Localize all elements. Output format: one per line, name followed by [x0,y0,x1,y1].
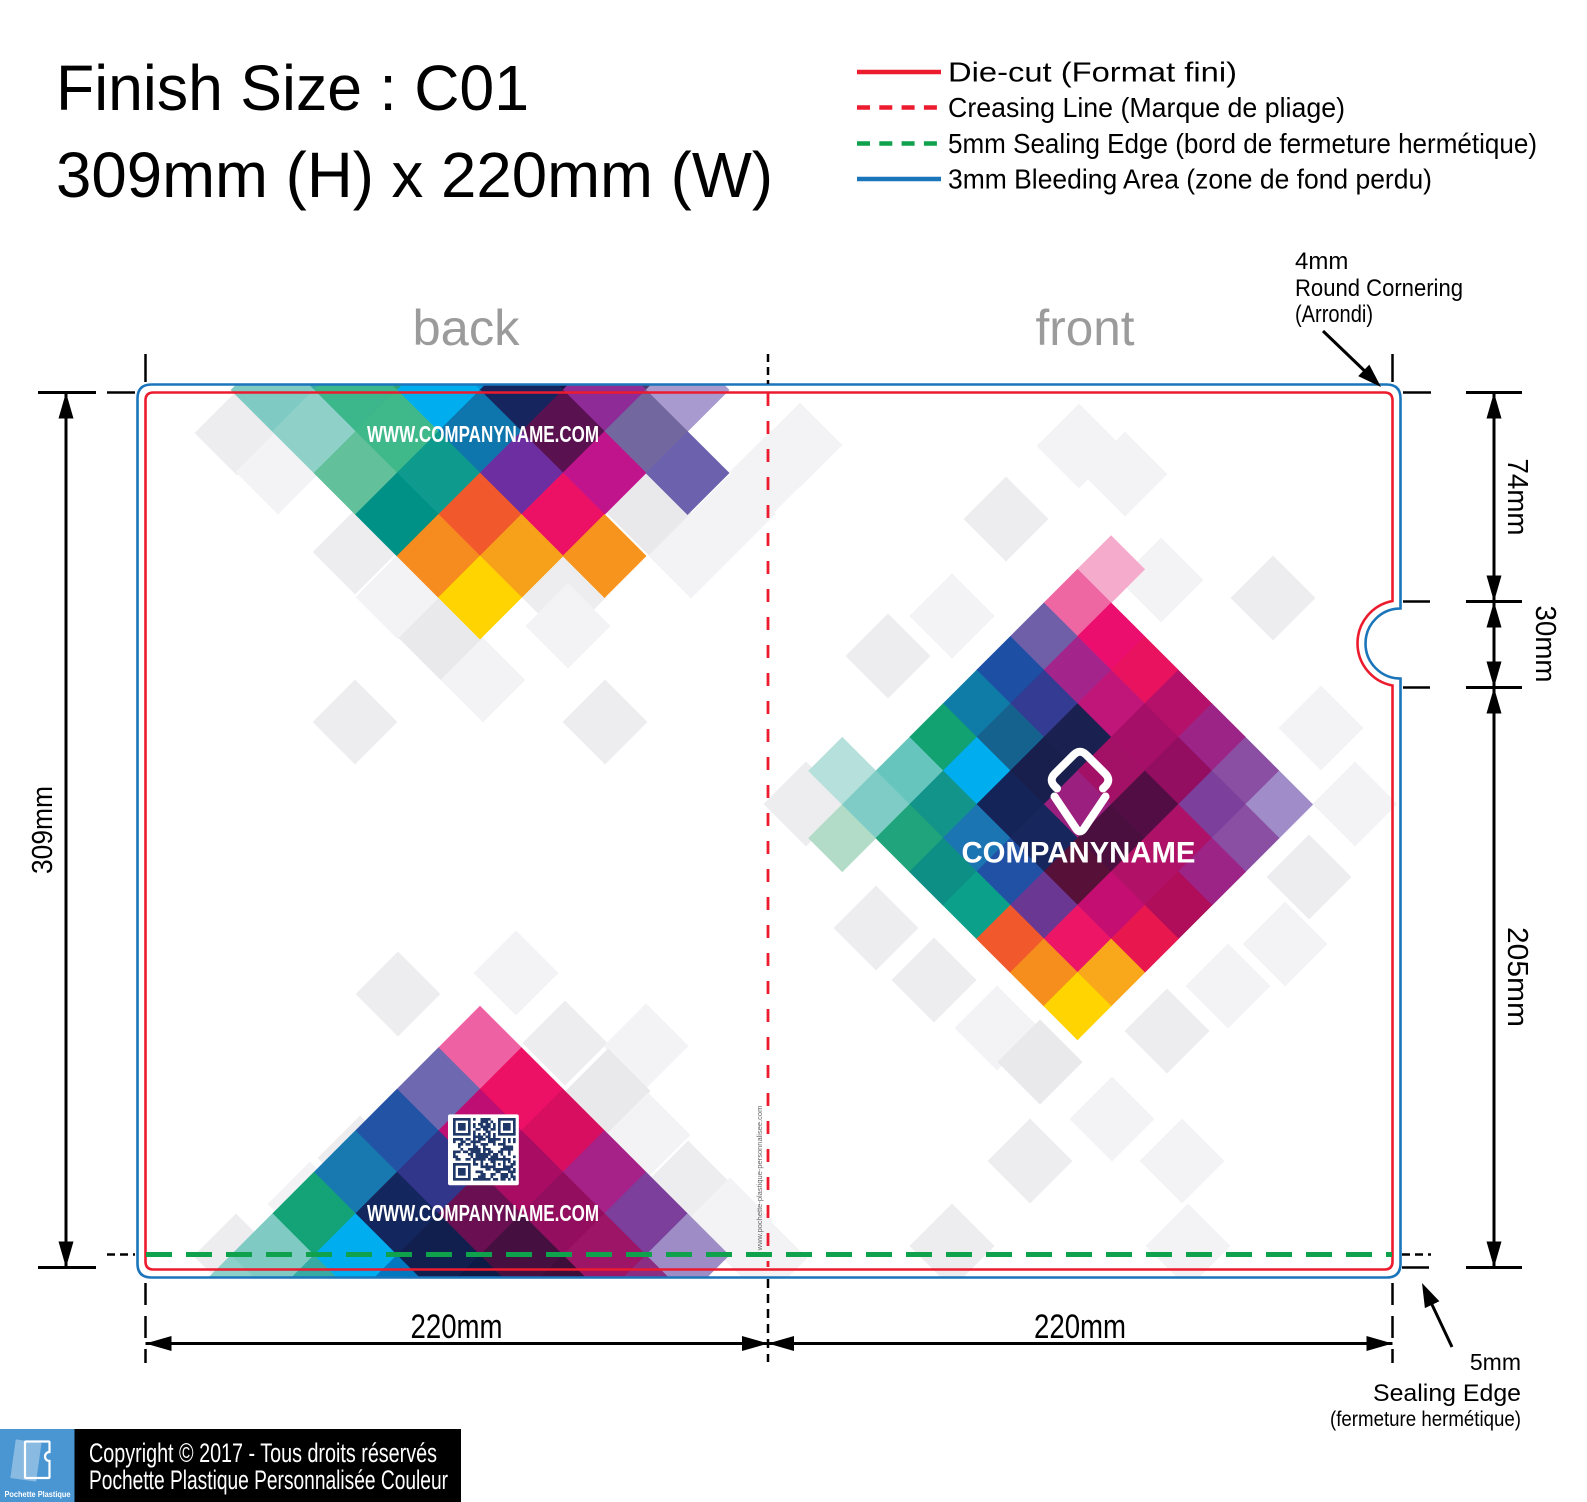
svg-text:3mm Bleeding Area (zone de fon: 3mm Bleeding Area (zone de fond perdu) [948,164,1432,195]
svg-text:30mm: 30mm [1529,606,1561,683]
svg-text:5mm: 5mm [1470,1349,1521,1375]
svg-text:(Arrondi): (Arrondi) [1295,301,1373,328]
svg-text:205mm: 205mm [1501,927,1533,1027]
svg-text:COMPANYNAME: COMPANYNAME [962,837,1196,870]
svg-text:Round Cornering: Round Cornering [1295,275,1463,302]
svg-text:WWW.COMPANYNAME.COM: WWW.COMPANYNAME.COM [367,421,599,447]
svg-text:www.pochette-plastique-personn: www.pochette-plastique-personnalisee.com [755,1106,764,1252]
svg-text:WWW.COMPANYNAME.COM: WWW.COMPANYNAME.COM [367,1200,599,1226]
svg-text:4mm: 4mm [1295,248,1348,275]
svg-text:309mm: 309mm [27,786,59,874]
svg-text:Copyright © 2017 - Tous droits: Copyright © 2017 - Tous droits réservés [89,1438,437,1468]
svg-text:(fermeture hermétique): (fermeture hermétique) [1330,1408,1521,1431]
svg-text:5mm Sealing Edge (bord de ferm: 5mm Sealing Edge (bord de fermeture herm… [948,128,1537,159]
svg-text:Sealing Edge: Sealing Edge [1373,1380,1521,1407]
svg-text:220mm: 220mm [411,1308,503,1346]
svg-text:Creasing Line (Marque de pliag: Creasing Line (Marque de pliage) [948,92,1345,123]
svg-text:220mm: 220mm [1034,1308,1126,1346]
svg-text:309mm (H) x 220mm (W): 309mm (H) x 220mm (W) [56,139,773,211]
svg-text:back: back [413,300,521,356]
svg-text:Pochette Plastique: Pochette Plastique [5,1490,72,1499]
svg-text:Finish Size : C01: Finish Size : C01 [56,52,529,124]
svg-text:Die-cut (Format fini): Die-cut (Format fini) [948,57,1237,88]
svg-text:front: front [1036,300,1135,356]
svg-text:Pochette Plastique Personnalis: Pochette Plastique Personnalisée Couleur [89,1465,448,1495]
svg-text:74mm: 74mm [1501,459,1533,536]
